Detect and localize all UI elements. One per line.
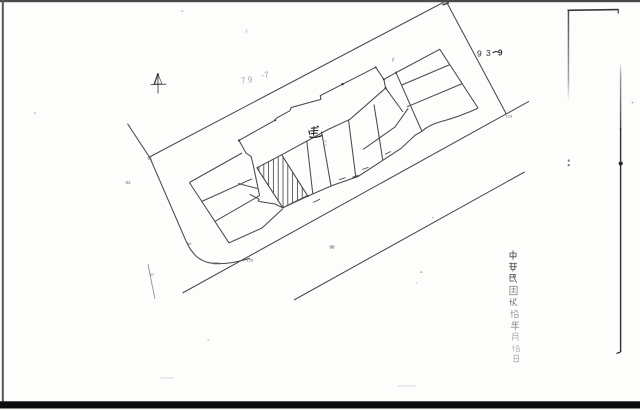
svg-text:9: 9: [498, 49, 503, 58]
svg-text:98: 98: [330, 245, 336, 250]
svg-text:56: 56: [148, 156, 153, 161]
svg-text:3: 3: [486, 48, 491, 58]
svg-text:123: 123: [506, 114, 513, 119]
svg-text:56: 56: [187, 241, 192, 246]
svg-text:9: 9: [477, 49, 482, 59]
svg-text:-2: -2: [323, 143, 327, 148]
svg-text:120: 120: [213, 261, 220, 266]
svg-text:82: 82: [126, 180, 132, 185]
svg-text:-7: -7: [261, 69, 270, 80]
svg-text:57: 57: [150, 272, 155, 277]
svg-text:126: 126: [247, 258, 254, 263]
svg-text:79: 79: [240, 74, 255, 86]
